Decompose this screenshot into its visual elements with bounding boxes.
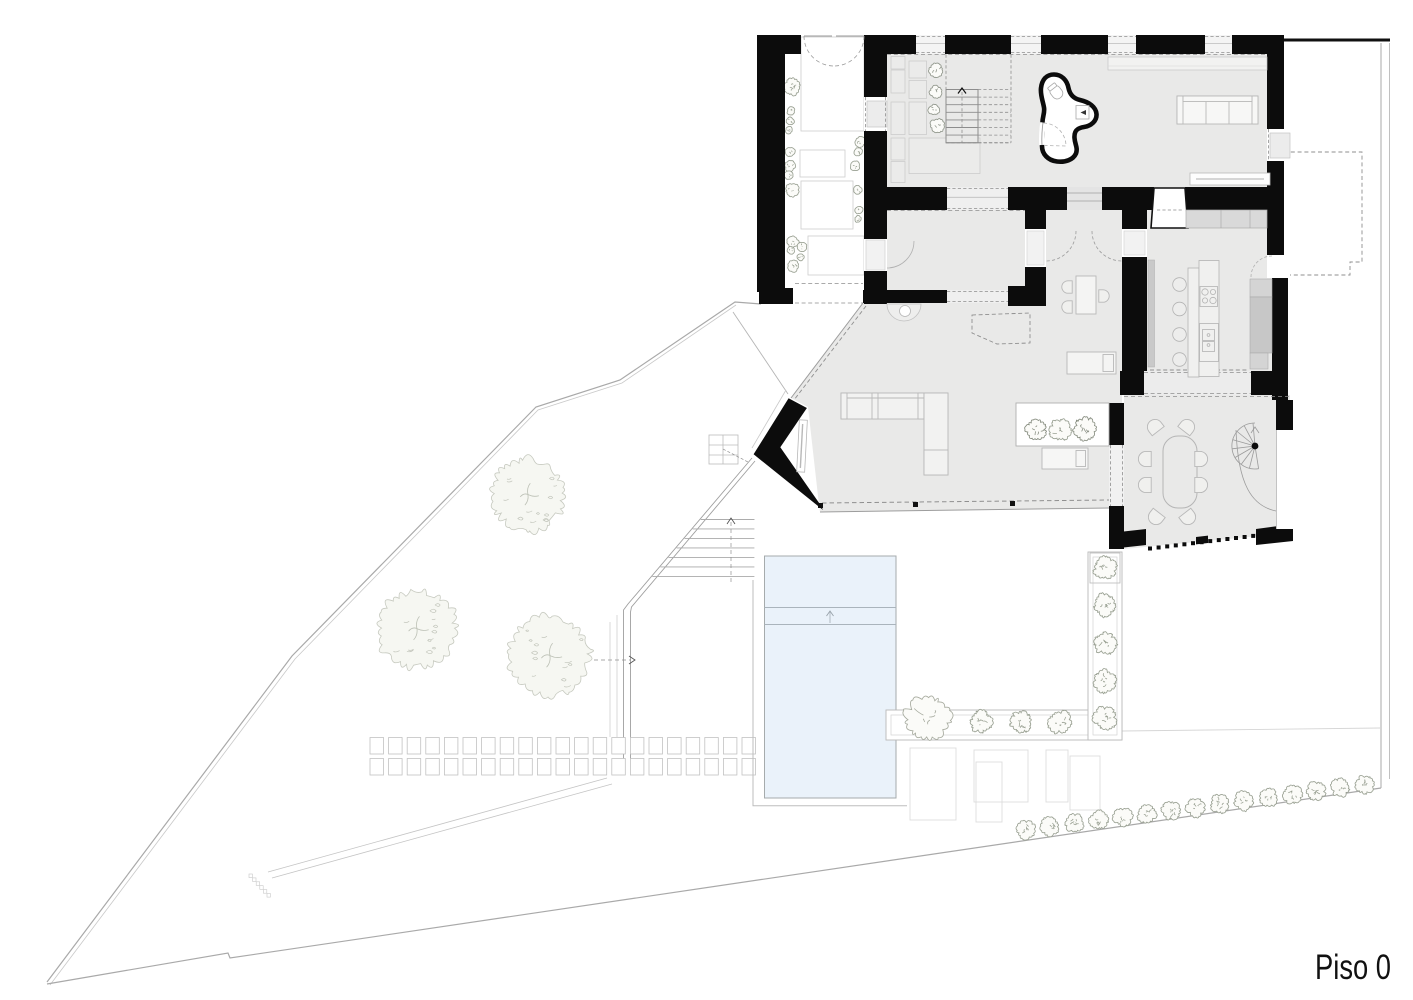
svg-text:Piso 0: Piso 0: [1315, 948, 1391, 987]
